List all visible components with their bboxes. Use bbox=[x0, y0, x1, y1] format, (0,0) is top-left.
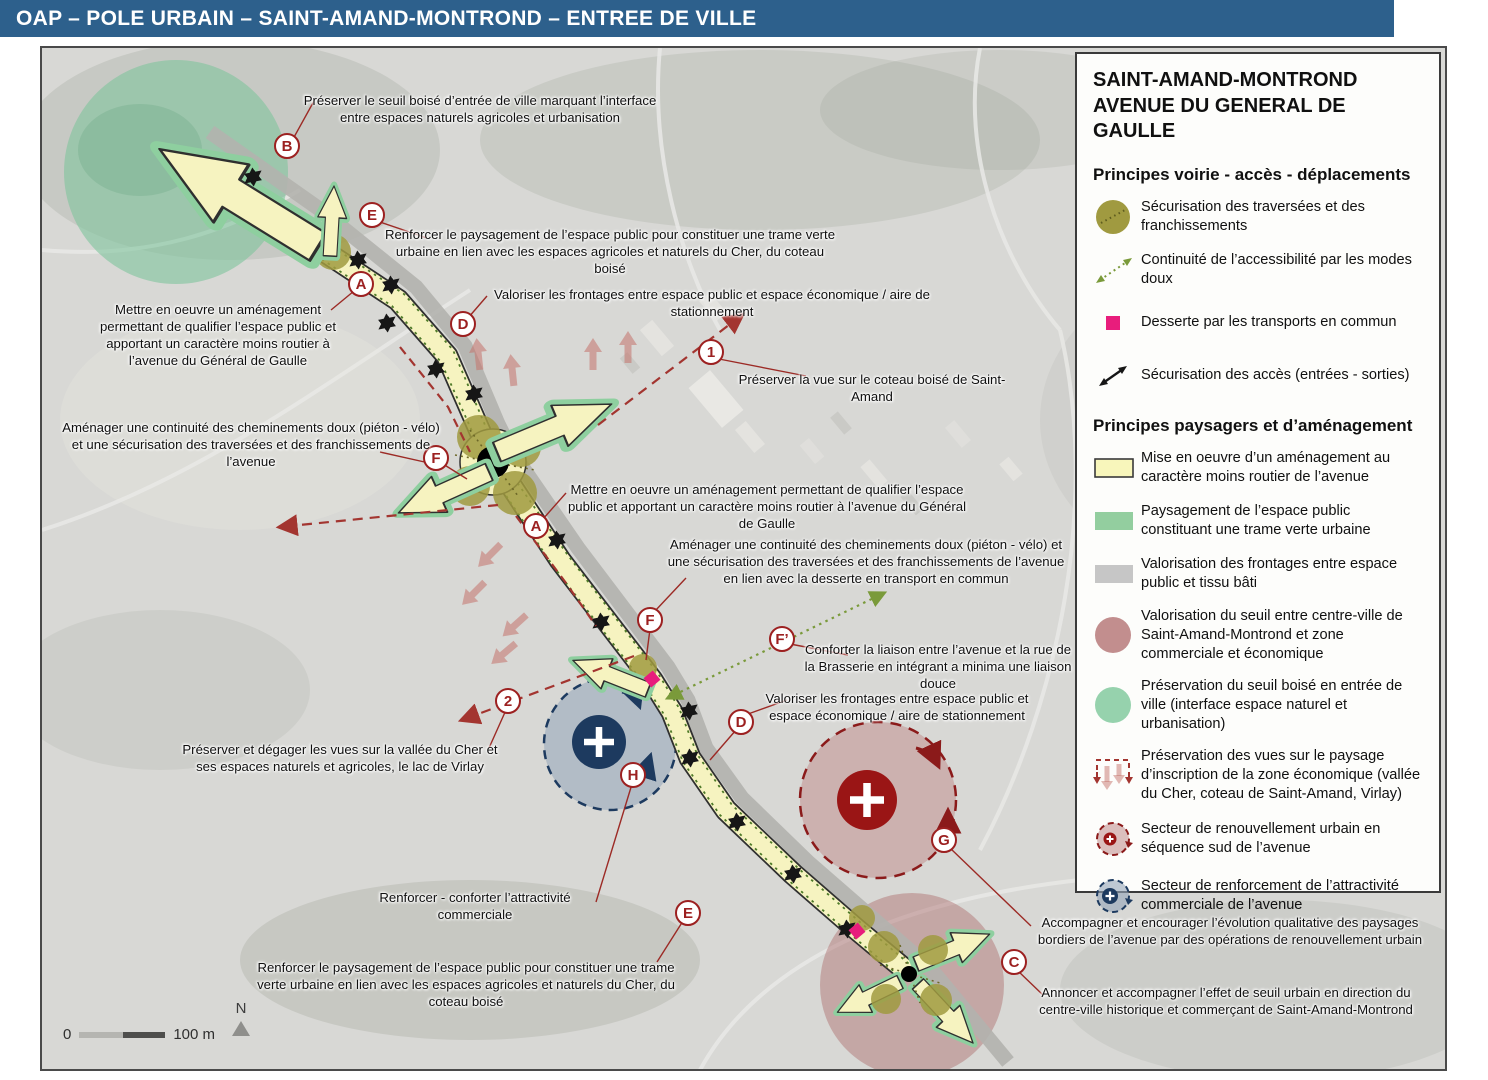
legend-item: Sécurisation des accès (entrées - sortie… bbox=[1093, 356, 1423, 396]
legend-item-label: Sécurisation des traversées et des franc… bbox=[1141, 198, 1423, 236]
scale-bar-end-label: 100 m bbox=[173, 1026, 215, 1043]
legend-item: Sécurisation des traversées et des franc… bbox=[1093, 197, 1423, 237]
scale-bar: 0 100 m bbox=[55, 1026, 223, 1043]
dotted-green-arrow-icon bbox=[1093, 250, 1141, 290]
scale-bar-dark-segment bbox=[123, 1032, 165, 1038]
legend-item-label: Valorisation des frontages entre espace … bbox=[1141, 555, 1423, 593]
legend-item: Préservation des vues sur le paysage d’i… bbox=[1093, 747, 1423, 804]
scale-bar-light-segment bbox=[79, 1032, 123, 1038]
legend-item: Continuité de l’accessibilité par les mo… bbox=[1093, 250, 1423, 290]
legend-item: Desserte par les transports en commun bbox=[1093, 303, 1423, 343]
rose-circle-icon bbox=[1093, 615, 1141, 655]
legend-item-label: Secteur de renouvellement urbain en séqu… bbox=[1141, 820, 1423, 858]
north-label: N bbox=[232, 1000, 250, 1018]
legend-item: Secteur de renouvellement urbain en séqu… bbox=[1093, 817, 1423, 861]
legend-item-label: Paysagement de l’espace public constitua… bbox=[1141, 502, 1423, 540]
legend-item-label: Valorisation du seuil entre centre-ville… bbox=[1141, 607, 1423, 664]
scale-bar-start-label: 0 bbox=[63, 1026, 71, 1043]
legend-item: Mise en oeuvre d’un aménagement au carac… bbox=[1093, 448, 1423, 488]
north-arrow-icon bbox=[232, 1021, 250, 1036]
legend-panel: SAINT-AMAND-MONTROND AVENUE DU GENERAL D… bbox=[1075, 52, 1441, 893]
gray-swatch-icon bbox=[1093, 554, 1141, 594]
north-indicator: N bbox=[232, 1000, 250, 1036]
blue-dashed-sector-icon bbox=[1093, 874, 1141, 918]
legend-item: Préservation du seuil boisé en entrée de… bbox=[1093, 677, 1423, 734]
legend-item: Valorisation des frontages entre espace … bbox=[1093, 554, 1423, 594]
page: { "title_bar": { "text": "OAP – POLE URB… bbox=[0, 0, 1488, 1080]
secteur-renouvellement bbox=[800, 722, 956, 878]
legend-item-label: Préservation des vues sur le paysage d’i… bbox=[1141, 747, 1423, 804]
legend-title-line2: AVENUE DU GENERAL DE GAULLE bbox=[1093, 94, 1423, 145]
legend-item-label: Continuité de l’accessibilité par les mo… bbox=[1141, 251, 1423, 289]
legend-item-label: Mise en oeuvre d’un aménagement au carac… bbox=[1141, 449, 1423, 487]
title-bar: OAP – POLE URBAIN – SAINT-AMAND-MONTROND… bbox=[0, 0, 1394, 37]
red-dashed-views-icon bbox=[1093, 752, 1141, 798]
legend-sections: Principes voirie - accès - déplacementsS… bbox=[1093, 165, 1423, 918]
legend-item: Paysagement de l’espace public constitua… bbox=[1093, 501, 1423, 541]
legend-item-label: Sécurisation des accès (entrées - sortie… bbox=[1141, 366, 1409, 385]
legend-item-label: Desserte par les transports en commun bbox=[1141, 313, 1397, 332]
green-circle-icon bbox=[1093, 685, 1141, 725]
legend-section-heading-0: Principes voirie - accès - déplacements bbox=[1093, 165, 1423, 185]
black-double-arrow-icon bbox=[1093, 356, 1141, 396]
legend-title-line1: SAINT-AMAND-MONTROND bbox=[1093, 68, 1423, 94]
green-swatch-icon bbox=[1093, 501, 1141, 541]
yellow-swatch-icon bbox=[1093, 448, 1141, 488]
red-dashed-sector-icon bbox=[1093, 817, 1141, 861]
olive-circle-dotted-icon bbox=[1093, 197, 1141, 237]
legend-item: Valorisation du seuil entre centre-ville… bbox=[1093, 607, 1423, 664]
magenta-square-icon bbox=[1093, 303, 1141, 343]
title-bar-text: OAP – POLE URBAIN – SAINT-AMAND-MONTROND… bbox=[16, 7, 756, 31]
legend-item: Secteur de renforcement de l’attractivit… bbox=[1093, 874, 1423, 918]
legend-item-label: Secteur de renforcement de l’attractivit… bbox=[1141, 877, 1423, 915]
legend-item-label: Préservation du seuil boisé en entrée de… bbox=[1141, 677, 1423, 734]
legend-section-heading-1: Principes paysagers et d’aménagement bbox=[1093, 416, 1423, 436]
